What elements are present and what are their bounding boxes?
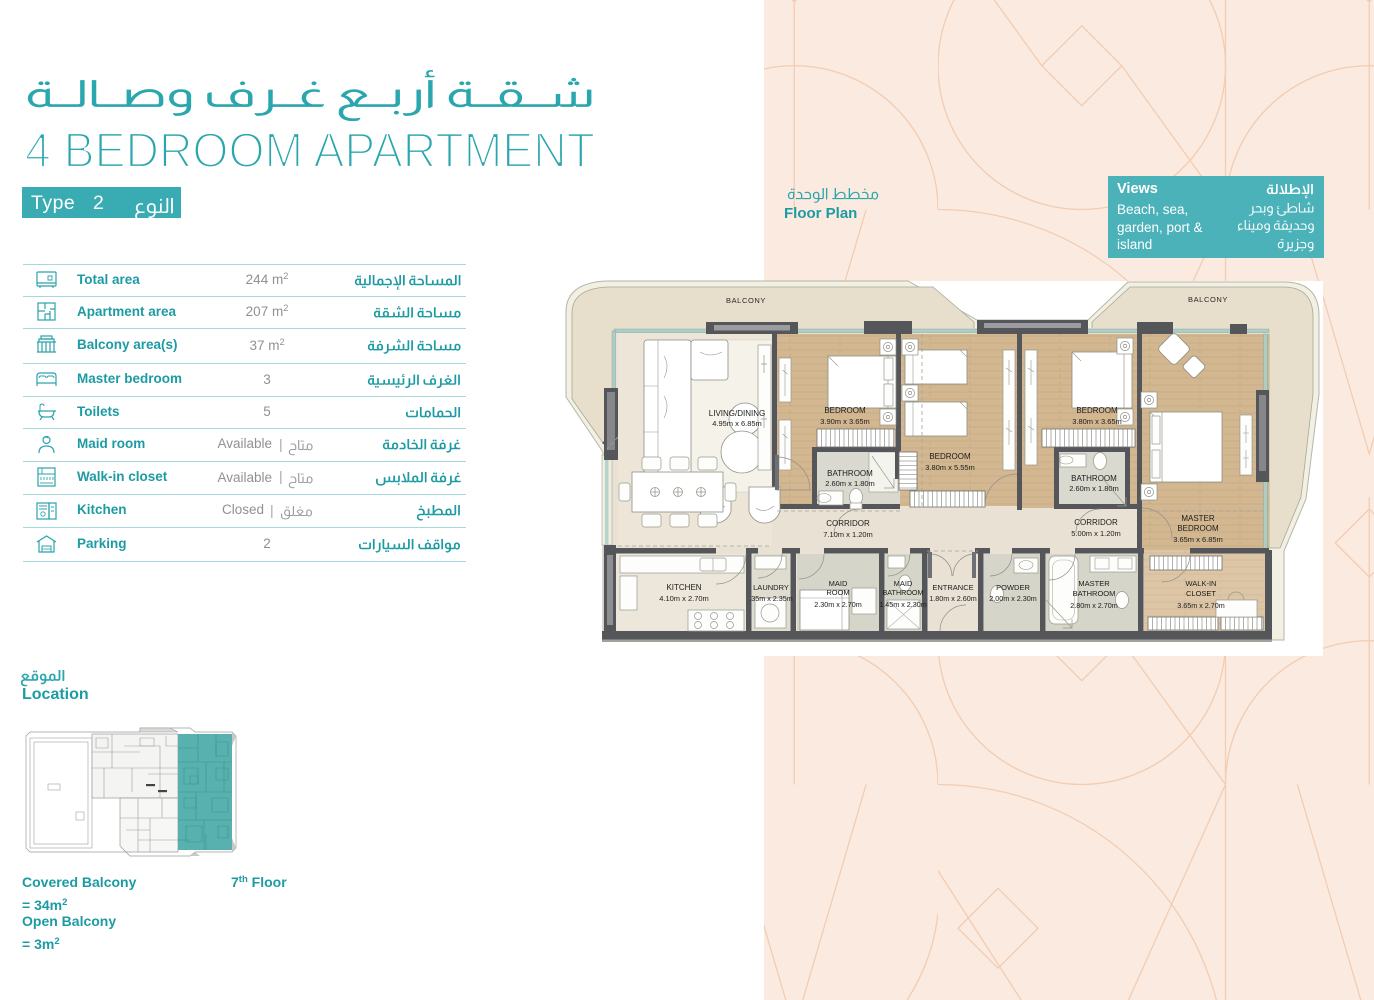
- svg-text:5.00m x 1.20m: 5.00m x 1.20m: [1071, 529, 1121, 538]
- svg-text:3.80m x 5.55m: 3.80m x 5.55m: [925, 463, 975, 472]
- svg-text:CORRIDOR: CORRIDOR: [1074, 518, 1118, 527]
- svg-text:BATHROOM: BATHROOM: [1071, 474, 1117, 483]
- svg-text:LIVING/DINING: LIVING/DINING: [709, 409, 765, 418]
- svg-text:1.45m x 2.30m: 1.45m x 2.30m: [879, 600, 927, 609]
- svg-text:KITCHEN: KITCHEN: [666, 583, 701, 592]
- svg-text:4 BEDROOM APARTMENT: 4 BEDROOM APARTMENT: [25, 124, 595, 174]
- svg-text:BEDROOM: BEDROOM: [1076, 406, 1118, 415]
- svg-text:.35m x 2.35m: .35m x 2.35m: [749, 594, 793, 603]
- svg-text:2.30m x 2.70m: 2.30m x 2.70m: [814, 600, 862, 609]
- svg-text:BATHROOM: BATHROOM: [1073, 589, 1116, 598]
- svg-text:CORRIDOR: CORRIDOR: [826, 519, 870, 528]
- svg-text:3.80m x 3.65m: 3.80m x 3.65m: [1072, 417, 1122, 426]
- svg-text:1.80m x 2.60m: 1.80m x 2.60m: [929, 594, 977, 603]
- svg-text:ROOM: ROOM: [826, 588, 849, 597]
- svg-text:BEDROOM: BEDROOM: [824, 406, 866, 415]
- svg-text:3.65m x 6.85m: 3.65m x 6.85m: [1173, 535, 1223, 544]
- svg-text:BEDROOM: BEDROOM: [929, 452, 971, 461]
- svg-text:3.65m x 2.70m: 3.65m x 2.70m: [1177, 601, 1225, 610]
- svg-text:MAID: MAID: [894, 579, 913, 588]
- svg-text:CLOSET: CLOSET: [1186, 589, 1216, 598]
- svg-text:BEDROOM: BEDROOM: [1177, 524, 1219, 533]
- svg-text:4.95m x 6.85m: 4.95m x 6.85m: [712, 419, 762, 428]
- svg-text:4.10m x 2.70m: 4.10m x 2.70m: [659, 594, 709, 603]
- svg-text:LAUNDRY: LAUNDRY: [753, 583, 789, 592]
- svg-text:BATHROOM: BATHROOM: [883, 588, 924, 597]
- svg-text:WALK-IN: WALK-IN: [1186, 579, 1217, 588]
- svg-text:MAID: MAID: [829, 579, 848, 588]
- svg-text:3.90m x 3.65m: 3.90m x 3.65m: [820, 417, 870, 426]
- svg-text:2.80m x 2.70m: 2.80m x 2.70m: [1070, 601, 1118, 610]
- svg-text:BALCONY: BALCONY: [726, 296, 766, 305]
- svg-text:2.60m x 1.80m: 2.60m x 1.80m: [1069, 484, 1119, 493]
- svg-text:POWDER: POWDER: [996, 583, 1030, 592]
- svg-text:MASTER: MASTER: [1181, 514, 1215, 523]
- svg-text:BALCONY: BALCONY: [1188, 295, 1228, 304]
- svg-text:7.10m x 1.20m: 7.10m x 1.20m: [823, 530, 873, 539]
- svg-text:2.00m x 2.30m: 2.00m x 2.30m: [989, 594, 1037, 603]
- svg-text:2.60m x 1.80m: 2.60m x 1.80m: [825, 479, 875, 488]
- svg-text:MASTER: MASTER: [1078, 579, 1110, 588]
- svg-text:ENTRANCE: ENTRANCE: [932, 583, 973, 592]
- svg-text:BATHROOM: BATHROOM: [827, 469, 873, 478]
